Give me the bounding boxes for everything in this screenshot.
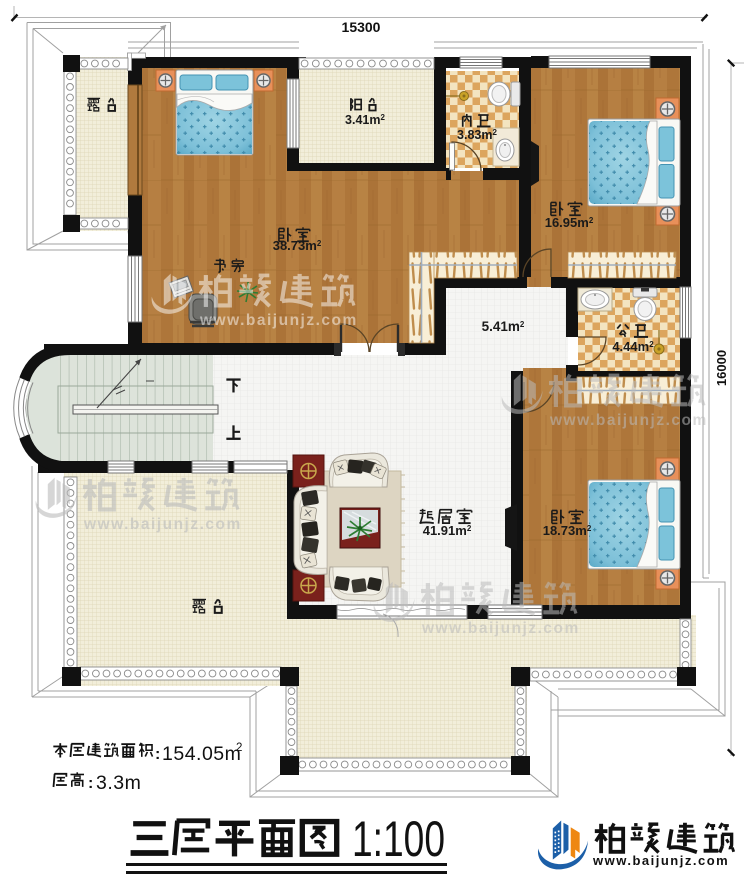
svg-text:38.73m2: 38.73m2	[273, 238, 322, 253]
svg-text:2: 2	[236, 742, 242, 754]
svg-text:3.3m: 3.3m	[96, 772, 141, 794]
svg-text:www.baijunjz.com: www.baijunjz.com	[592, 853, 729, 868]
svg-text:41.91m2: 41.91m2	[423, 523, 472, 538]
svg-text:3.41m2: 3.41m2	[345, 113, 385, 127]
svg-text:4.44m2: 4.44m2	[612, 339, 654, 354]
svg-text::: :	[88, 775, 93, 792]
svg-text:16.95m2: 16.95m2	[545, 215, 594, 230]
svg-text:3.83m2: 3.83m2	[457, 128, 497, 142]
svg-text:154.05m: 154.05m	[162, 743, 241, 765]
svg-text:18.73m2: 18.73m2	[543, 523, 592, 538]
svg-text:16000: 16000	[714, 350, 729, 386]
svg-text::: :	[155, 746, 160, 763]
svg-text:1:100: 1:100	[352, 811, 445, 867]
svg-text:5.41m2: 5.41m2	[482, 319, 525, 334]
svg-text:15300: 15300	[342, 19, 381, 35]
